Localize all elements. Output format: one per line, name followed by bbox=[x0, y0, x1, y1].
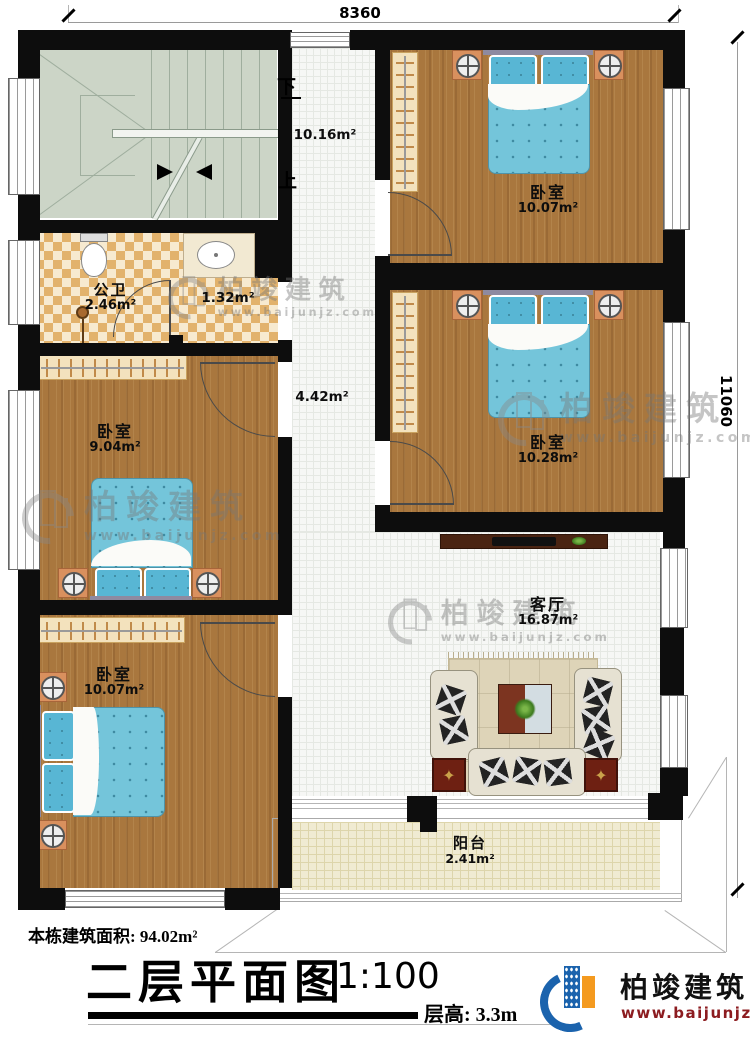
balcony-railing-line bbox=[272, 898, 682, 899]
balcony-railing-line bbox=[272, 893, 682, 894]
room-label-bedroom-mid-right: 卧室10.28m² bbox=[488, 434, 608, 466]
eave-line bbox=[664, 910, 725, 953]
stair-direction-arrow bbox=[196, 164, 212, 180]
wall bbox=[660, 628, 684, 695]
watermark-logo-icon bbox=[388, 595, 432, 639]
door-leaf bbox=[200, 362, 275, 364]
armchair-left bbox=[430, 670, 478, 760]
door-leaf bbox=[388, 254, 452, 256]
sliding-door-track bbox=[437, 799, 648, 800]
wall bbox=[169, 335, 183, 345]
bed-bedroom-bottom-left bbox=[37, 705, 165, 817]
room-label-stairwell-area: 10.16m² bbox=[280, 128, 370, 143]
sliding-door-track bbox=[437, 803, 648, 804]
wardrobe-bedroom-bottom-left bbox=[37, 617, 185, 643]
nightstand bbox=[37, 672, 67, 702]
room-label-bedroom-top-right: 卧室10.07m² bbox=[488, 184, 608, 216]
wardrobe-bedroom-mid-left bbox=[37, 354, 187, 380]
window bbox=[660, 548, 688, 628]
stair-down-label: 下 bbox=[277, 72, 296, 99]
wall bbox=[18, 30, 290, 50]
window bbox=[663, 88, 690, 230]
watermark-logo-icon bbox=[22, 486, 74, 538]
dimension-line-right bbox=[737, 42, 738, 898]
tv bbox=[492, 537, 556, 546]
wall bbox=[660, 765, 688, 796]
title-underline bbox=[88, 1012, 418, 1019]
window bbox=[290, 32, 350, 48]
wall bbox=[278, 822, 292, 888]
wall bbox=[375, 512, 672, 532]
brand-logo-icon bbox=[540, 962, 618, 1034]
wall bbox=[18, 195, 40, 240]
wall bbox=[18, 600, 292, 615]
wall bbox=[350, 30, 683, 50]
wall bbox=[375, 263, 665, 290]
wall bbox=[663, 230, 685, 322]
stair-down-underline bbox=[281, 97, 301, 99]
cabinet-plant bbox=[572, 537, 586, 545]
wall bbox=[18, 343, 278, 356]
wall bbox=[18, 220, 278, 233]
wall bbox=[18, 888, 65, 910]
wall bbox=[18, 325, 40, 390]
side-table: ✦ bbox=[432, 758, 466, 792]
sofa-bottom bbox=[468, 748, 586, 796]
floor-height-label: 层高: 3.3m bbox=[424, 998, 517, 1027]
nightstand bbox=[594, 50, 624, 80]
wall bbox=[375, 30, 390, 180]
sliding-door-track bbox=[292, 803, 407, 804]
room-label-bath-anteroom: 1.32m² bbox=[188, 291, 268, 306]
wall bbox=[648, 793, 683, 820]
wall bbox=[278, 30, 292, 282]
dimension-width-label: 8360 bbox=[320, 4, 400, 22]
building-area-label: 本栋建筑面积: 94.02m² bbox=[28, 922, 197, 947]
room-label-bedroom-mid-left: 卧室9.04m² bbox=[65, 423, 165, 455]
wall bbox=[18, 50, 40, 78]
stair-landing-line bbox=[80, 95, 135, 96]
floor-plan-canvas: ✦ ✦ 卧室10.07m² 卧室10.28m² 公卫2.46m² 1.32m² … bbox=[0, 0, 750, 1037]
wall bbox=[375, 290, 390, 441]
nightstand bbox=[452, 50, 482, 80]
wall bbox=[225, 888, 280, 910]
wardrobe-bedroom-top-right bbox=[392, 52, 418, 192]
watermark: 柏竣建筑www.baijunjz.com bbox=[22, 480, 283, 544]
dimension-line-top bbox=[68, 22, 678, 23]
room-label-bathroom: 公卫2.46m² bbox=[63, 282, 158, 313]
side-table: ✦ bbox=[584, 758, 618, 792]
dimension-height-label: 11060 bbox=[717, 375, 735, 427]
stair-direction-arrow bbox=[157, 164, 173, 180]
wall bbox=[278, 697, 292, 822]
bed-bedroom-top-right bbox=[483, 50, 593, 174]
window bbox=[8, 78, 40, 195]
plan-scale: 1:100 bbox=[336, 956, 440, 997]
stair-landing-line bbox=[80, 175, 135, 176]
toilet-tank bbox=[80, 233, 108, 242]
nightstand bbox=[192, 568, 222, 598]
room-label-living-room: 客厅16.87m² bbox=[488, 596, 608, 628]
eave-line bbox=[726, 757, 727, 952]
wall bbox=[663, 478, 685, 548]
rug-fringe bbox=[448, 652, 598, 658]
room-label-bedroom-bottom-left: 卧室10.07m² bbox=[64, 666, 164, 698]
stair-landing-line bbox=[80, 95, 81, 175]
wall bbox=[663, 30, 685, 88]
door-leaf bbox=[200, 622, 275, 624]
table-plant bbox=[514, 698, 536, 720]
stair-handrail bbox=[112, 129, 290, 138]
dimension-tick bbox=[667, 8, 681, 22]
wall bbox=[420, 822, 437, 832]
wall bbox=[18, 570, 40, 910]
window bbox=[660, 695, 688, 768]
nightstand bbox=[452, 290, 482, 320]
window bbox=[65, 890, 225, 908]
nightstand bbox=[37, 820, 67, 850]
room-label-hallway: 4.42m² bbox=[282, 390, 362, 405]
sill-line bbox=[292, 808, 648, 809]
brand-name: 柏竣建筑 bbox=[620, 966, 748, 1006]
wardrobe-bedroom-mid-right bbox=[392, 292, 418, 433]
window bbox=[8, 240, 40, 325]
eave-line bbox=[688, 757, 727, 819]
stair-up-label: 上 bbox=[278, 166, 297, 193]
brand-url: www.baijunjz.com bbox=[621, 1004, 750, 1022]
door-leaf bbox=[390, 503, 454, 505]
wall bbox=[407, 796, 437, 822]
nightstand bbox=[594, 290, 624, 320]
room-label-balcony: 阳台2.41m² bbox=[430, 835, 510, 866]
sink-drain-dot bbox=[214, 253, 218, 257]
floor-drain-stem bbox=[82, 319, 84, 343]
wall bbox=[278, 340, 292, 362]
sliding-door-track bbox=[292, 799, 407, 800]
plan-title: 二层平面图 bbox=[86, 946, 346, 1012]
nightstand bbox=[58, 568, 88, 598]
toilet-bowl bbox=[81, 243, 107, 277]
